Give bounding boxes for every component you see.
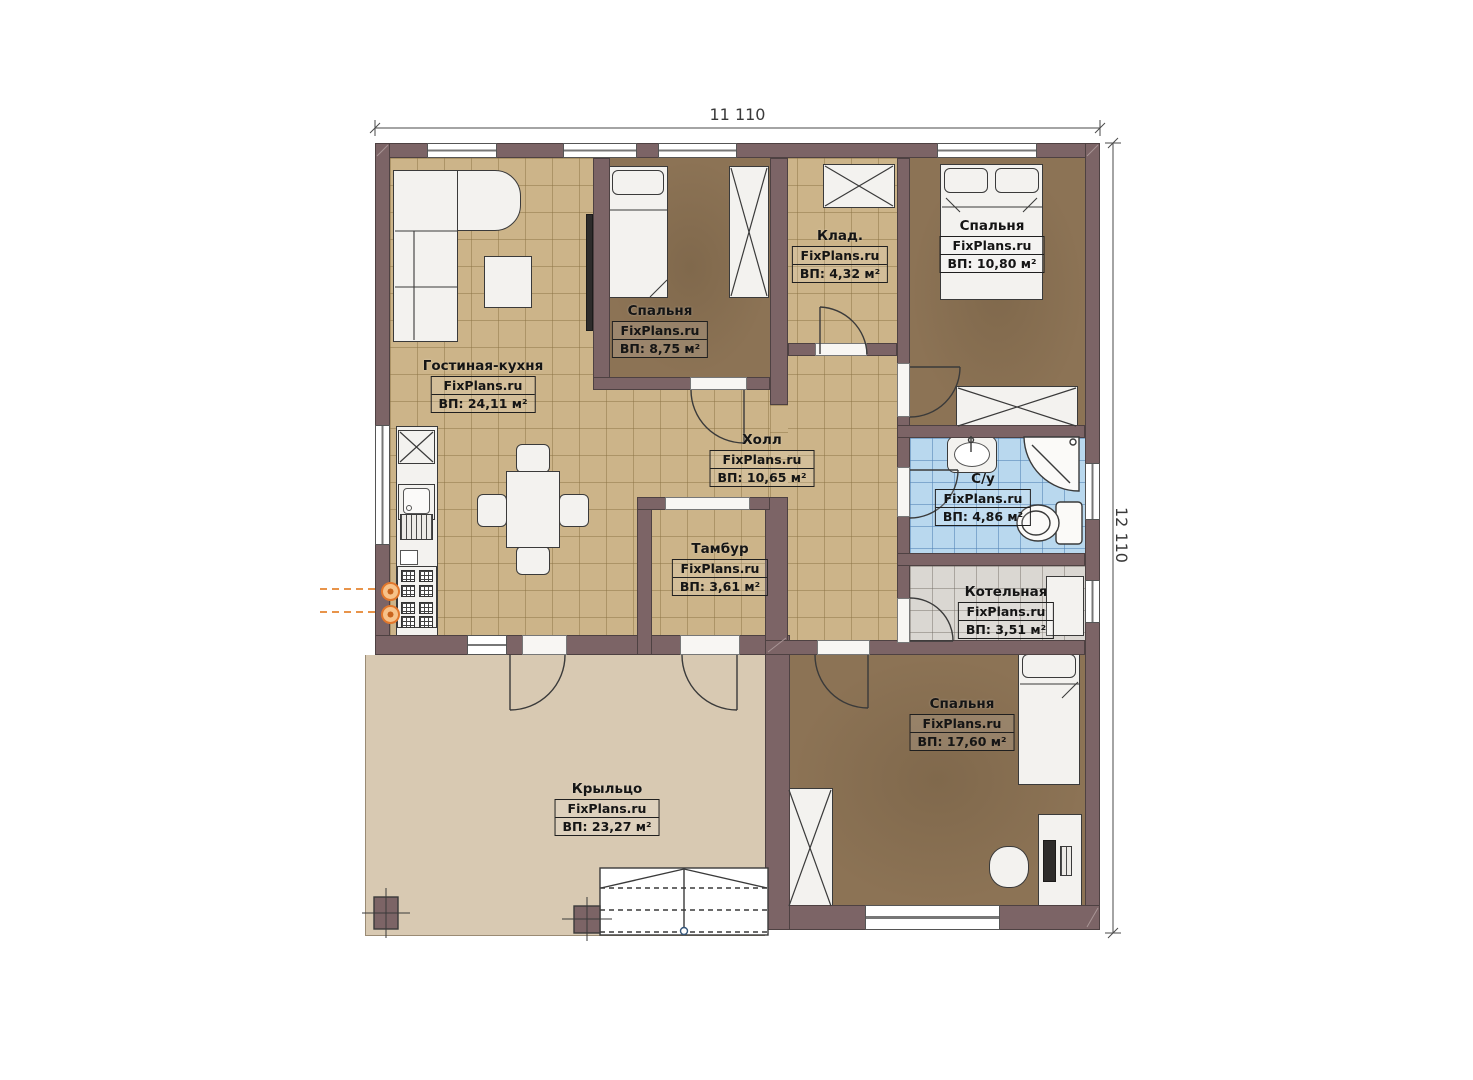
wall-segment bbox=[1085, 143, 1100, 930]
door-opening bbox=[815, 343, 867, 356]
room-area: ВП: 4,32 м² bbox=[793, 264, 887, 282]
door-opening bbox=[817, 640, 870, 655]
stove-burner bbox=[401, 570, 415, 582]
room-area: ВП: 10,65 м² bbox=[711, 468, 814, 486]
room-name: С/у bbox=[935, 471, 1031, 487]
window bbox=[375, 425, 390, 545]
pillow bbox=[944, 168, 988, 193]
wardrobe bbox=[956, 386, 1078, 428]
room-area: ВП: 8,75 м² bbox=[613, 339, 707, 357]
bathroom-sink-bowl bbox=[954, 442, 990, 467]
monitor bbox=[1043, 840, 1056, 882]
room-label-bathroom: С/у FixPlans.ru ВП: 4,86 м² bbox=[935, 471, 1031, 526]
room-name: Крыльцо bbox=[555, 781, 660, 797]
room-brand: FixPlans.ru bbox=[613, 322, 707, 339]
room-area: ВП: 24,11 м² bbox=[432, 394, 535, 412]
dining-chair bbox=[477, 494, 507, 527]
stove-burner bbox=[401, 616, 415, 628]
window bbox=[865, 905, 1000, 930]
window bbox=[937, 143, 1037, 158]
stove-burner bbox=[419, 616, 433, 628]
wall-segment bbox=[770, 158, 788, 405]
room-brand: FixPlans.ru bbox=[673, 560, 767, 577]
door-opening bbox=[897, 467, 910, 517]
counter-item bbox=[400, 550, 418, 565]
room-brand: FixPlans.ru bbox=[941, 237, 1044, 254]
room-area: ВП: 3,51 м² bbox=[959, 620, 1053, 638]
window bbox=[1085, 463, 1100, 520]
room-area: ВП: 23,27 м² bbox=[556, 817, 659, 835]
room-brand: FixPlans.ru bbox=[556, 800, 659, 817]
room-name: Тамбур bbox=[672, 541, 768, 557]
wall-segment bbox=[897, 553, 1085, 566]
room-name: Спальня bbox=[940, 218, 1045, 234]
wall-segment bbox=[637, 497, 652, 655]
wall-segment bbox=[375, 143, 390, 655]
pillow bbox=[995, 168, 1039, 193]
wardrobe bbox=[787, 788, 833, 908]
room-brand: FixPlans.ru bbox=[959, 603, 1053, 620]
wardrobe bbox=[823, 164, 895, 208]
sofa-body bbox=[393, 170, 458, 342]
room-label-living-kitchen: Гостиная-кухня FixPlans.ru ВП: 24,11 м² bbox=[423, 358, 544, 413]
window bbox=[563, 143, 637, 158]
door-opening bbox=[897, 598, 910, 643]
door-opening bbox=[897, 363, 910, 417]
room-brand: FixPlans.ru bbox=[793, 247, 887, 264]
room-label-boiler-room: Котельная FixPlans.ru ВП: 3,51 м² bbox=[958, 584, 1054, 639]
dining-chair bbox=[516, 546, 550, 575]
room-name: Клад. bbox=[792, 228, 888, 244]
pillow bbox=[612, 170, 664, 195]
wall-segment bbox=[765, 640, 790, 930]
window bbox=[427, 143, 497, 158]
window bbox=[658, 143, 737, 158]
stove-burner bbox=[419, 602, 433, 614]
dimension-height-label: 12 110 bbox=[1111, 485, 1131, 585]
stove-burner bbox=[419, 585, 433, 597]
stove-burner bbox=[419, 570, 433, 582]
room-label-bedroom-2: Спальня FixPlans.ru ВП: 10,80 м² bbox=[940, 218, 1045, 273]
tv bbox=[586, 214, 593, 331]
room-brand: FixPlans.ru bbox=[911, 715, 1014, 732]
window bbox=[467, 635, 507, 655]
wall-segment bbox=[765, 640, 1085, 655]
gas-flame-icon bbox=[381, 582, 400, 601]
room-label-storage: Клад. FixPlans.ru ВП: 4,32 м² bbox=[792, 228, 888, 283]
room-name: Гостиная-кухня bbox=[423, 358, 544, 374]
room-area: ВП: 10,80 м² bbox=[941, 254, 1044, 272]
room-area: ВП: 17,60 м² bbox=[911, 732, 1014, 750]
room-label-porch: Крыльцо FixPlans.ru ВП: 23,27 м² bbox=[555, 781, 660, 836]
pillow bbox=[1022, 654, 1076, 678]
kitchen-cabinet bbox=[398, 430, 435, 464]
wall-segment bbox=[765, 497, 788, 655]
room-name: Холл bbox=[710, 432, 815, 448]
room-label-tambour: Тамбур FixPlans.ru ВП: 3,61 м² bbox=[672, 541, 768, 596]
wall-segment bbox=[593, 158, 610, 390]
dining-chair bbox=[516, 444, 550, 473]
stove-burner bbox=[401, 602, 415, 614]
room-brand: FixPlans.ru bbox=[711, 451, 814, 468]
dining-table bbox=[506, 471, 560, 548]
room-brand: FixPlans.ru bbox=[432, 377, 535, 394]
room-area: ВП: 4,86 м² bbox=[936, 507, 1030, 525]
room-name: Котельная bbox=[958, 584, 1054, 600]
wardrobe bbox=[729, 166, 769, 298]
dining-chair bbox=[559, 494, 589, 527]
gas-line bbox=[320, 589, 380, 612]
door-opening bbox=[665, 497, 750, 510]
room-area: ВП: 3,61 м² bbox=[673, 577, 767, 595]
room-label-bedroom-1: Спальня FixPlans.ru ВП: 8,75 м² bbox=[612, 303, 708, 358]
room-label-hall: Холл FixPlans.ru ВП: 10,65 м² bbox=[710, 432, 815, 487]
stove-burner bbox=[401, 585, 415, 597]
floor-plan: 11 110 12 110 Гостиная-кухня FixPlans.ru… bbox=[0, 0, 1473, 1080]
room-name: Спальня bbox=[910, 696, 1015, 712]
dimension-width-label: 11 110 bbox=[375, 105, 1100, 124]
room-label-bedroom-3: Спальня FixPlans.ru ВП: 17,60 м² bbox=[910, 696, 1015, 751]
sink-drain bbox=[406, 505, 412, 511]
room-brand: FixPlans.ru bbox=[936, 490, 1030, 507]
coffee-table bbox=[484, 256, 532, 308]
door-opening bbox=[680, 635, 740, 655]
room-name: Спальня bbox=[612, 303, 708, 319]
window bbox=[1085, 580, 1100, 623]
desk-chair bbox=[989, 846, 1029, 888]
gas-flame-icon bbox=[381, 605, 400, 624]
dishwasher bbox=[400, 514, 433, 540]
keyboard bbox=[1060, 846, 1072, 876]
door-opening bbox=[690, 377, 747, 390]
door-opening bbox=[522, 635, 567, 655]
wall-segment bbox=[897, 425, 1085, 438]
